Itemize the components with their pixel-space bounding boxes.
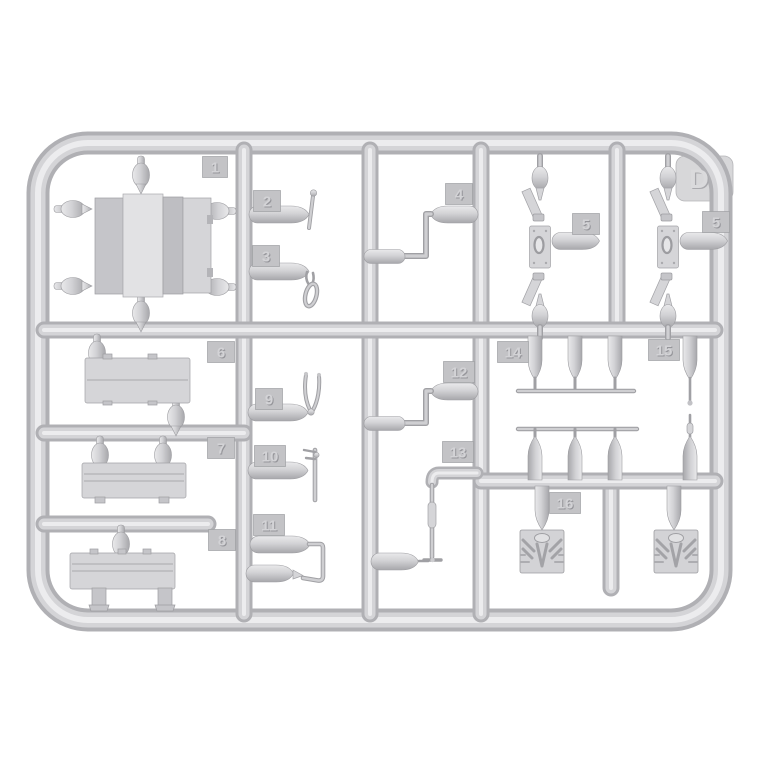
part-number-tag-6: 6 6 (208, 342, 235, 363)
part-number-tag-9: 9 9 (256, 389, 283, 410)
svg-text:16: 16 (557, 495, 574, 512)
part-number-tag-5-right: 5 5 (703, 212, 730, 233)
svg-text:6: 6 (217, 344, 225, 361)
part-number-tag-5-left: 5 5 (573, 214, 600, 235)
svg-text:1: 1 (211, 159, 219, 176)
sprue-letter-tag: D D (689, 164, 710, 195)
part-number-tag-4: 4 4 (446, 184, 473, 205)
part-number-tag-10: 10 10 (255, 446, 286, 467)
part-number-tag-11: 11 11 (254, 515, 285, 536)
part-number-tag-2: 2 2 (254, 191, 281, 212)
svg-text:5: 5 (712, 214, 720, 231)
part-number-tag-14: 14 14 (498, 342, 529, 363)
svg-text:5: 5 (582, 216, 590, 233)
svg-text:D: D (689, 164, 709, 194)
svg-text:10: 10 (262, 448, 279, 465)
svg-text:4: 4 (455, 186, 464, 203)
svg-text:14: 14 (505, 344, 522, 361)
part-number-tag-8: 8 8 (209, 530, 236, 551)
svg-text:7: 7 (217, 440, 225, 457)
svg-text:8: 8 (218, 532, 226, 549)
part-number-tag-13: 13 13 (443, 442, 474, 463)
svg-text:13: 13 (450, 444, 467, 461)
svg-text:2: 2 (263, 193, 271, 210)
svg-text:12: 12 (451, 364, 468, 381)
part-number-tag-7: 7 7 (208, 438, 235, 459)
svg-text:11: 11 (261, 517, 277, 534)
part-number-tag-12: 12 12 (444, 362, 475, 383)
sprue-drawing: 1 1 2 2 3 3 4 4 5 5 5 5 6 (0, 0, 767, 767)
part-number-tag-16: 16 16 (550, 493, 581, 514)
part-number-tag-15: 15 15 (649, 340, 680, 361)
part-number-tag-1: 1 1 (203, 157, 228, 178)
svg-text:3: 3 (262, 248, 270, 265)
sprue-photo: 1 1 2 2 3 3 4 4 5 5 5 5 6 (0, 0, 767, 767)
part-number-tag-3: 3 3 (253, 246, 280, 267)
svg-text:15: 15 (656, 342, 673, 359)
svg-text:9: 9 (265, 391, 273, 408)
